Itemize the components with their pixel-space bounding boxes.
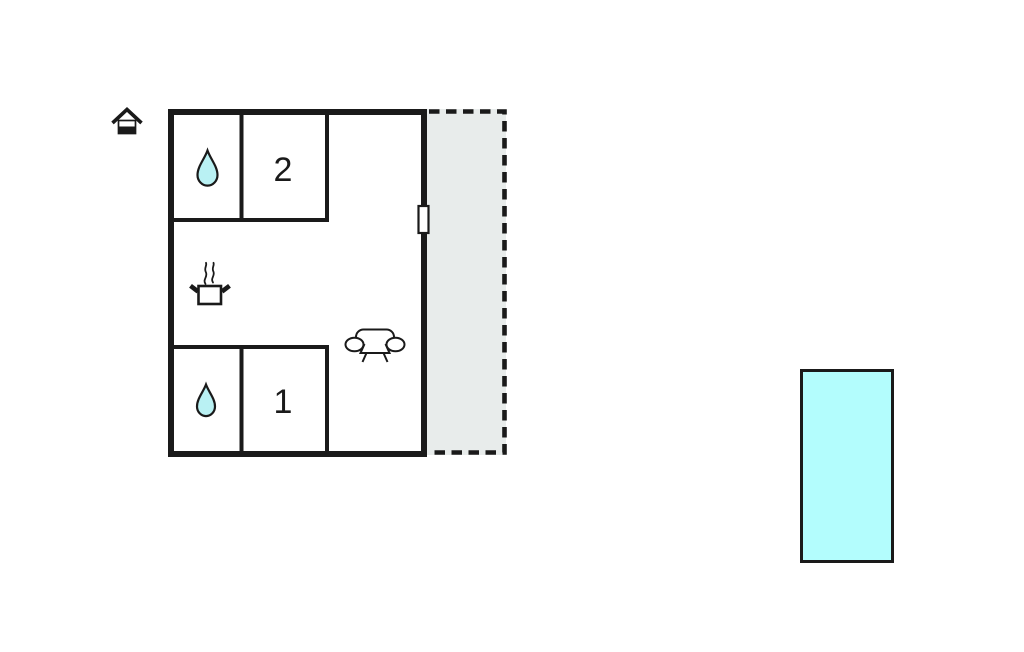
- house-icon: [113, 110, 142, 135]
- terrace-area: [424, 109, 506, 455]
- sofa-arm-left: [346, 338, 364, 352]
- swimming-pool: [802, 371, 893, 562]
- door-marker: [419, 206, 429, 233]
- room-2-label: 2: [274, 151, 293, 189]
- floor-plan-image: 2 1: [0, 0, 1024, 652]
- floor-plan-canvas: 2 1: [0, 0, 1024, 652]
- terrace-fill: [424, 109, 506, 455]
- house-icon-base: [118, 127, 136, 135]
- pot-body: [199, 286, 222, 304]
- sofa-seat: [361, 344, 390, 353]
- sofa-arm-right: [387, 338, 405, 352]
- room-1-label: 1: [274, 383, 293, 421]
